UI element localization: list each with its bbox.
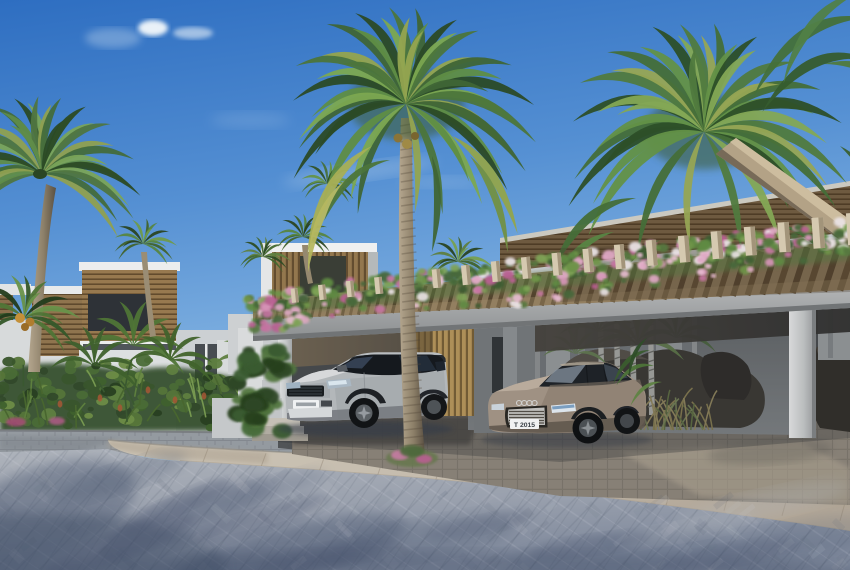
svg-text:T 2015: T 2015 [514, 422, 535, 429]
